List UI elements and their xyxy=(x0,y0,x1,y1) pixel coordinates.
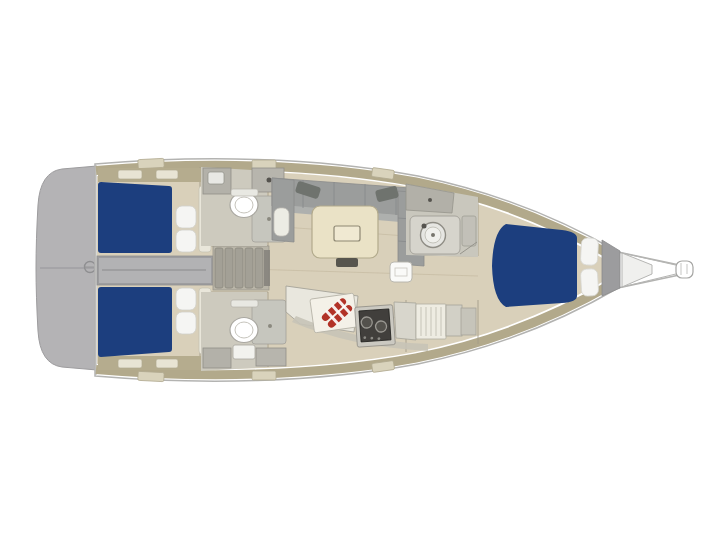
aft-cabin-top xyxy=(98,168,211,253)
v-berth-pillow xyxy=(580,238,598,266)
stair-tread xyxy=(215,248,223,288)
head-sink xyxy=(208,172,224,184)
stove-group xyxy=(355,305,396,348)
cabinet-knob xyxy=(428,198,432,202)
toilet-bottom xyxy=(230,318,258,343)
toilet-top-tank xyxy=(231,189,258,196)
salon-table xyxy=(312,206,378,267)
aft-cabin-top-cabinet xyxy=(98,168,208,182)
head-cabinet xyxy=(256,348,286,366)
galley-step xyxy=(461,308,476,335)
head-shelf xyxy=(462,216,476,246)
shower-drain xyxy=(267,217,271,221)
berth-pillow xyxy=(176,206,196,228)
stove-burner xyxy=(361,317,373,329)
v-berth-pillow xyxy=(580,269,598,297)
stair-tread xyxy=(245,248,253,288)
companionway-stairs xyxy=(213,246,270,290)
head-counter xyxy=(203,348,231,368)
deck-hatch xyxy=(138,371,164,381)
side-fixture xyxy=(390,262,412,282)
berth-pillow xyxy=(176,288,196,310)
table-recess xyxy=(334,226,360,241)
faucet-dot xyxy=(267,178,272,183)
aft-berth-bottom xyxy=(98,287,172,357)
aft-head-bottom xyxy=(201,292,286,371)
sofa-arm-pad xyxy=(274,208,289,236)
stair-tread xyxy=(235,248,243,288)
shower-drain xyxy=(268,324,272,328)
stair-tread xyxy=(255,248,263,288)
cabinet-hatch xyxy=(156,170,178,179)
aft-berth-top xyxy=(98,182,172,253)
deck-hatch xyxy=(138,158,164,168)
engine-compartment xyxy=(97,256,213,285)
side-fixture-body xyxy=(390,262,412,282)
berth-pillow xyxy=(176,312,196,334)
washbasin-drain xyxy=(431,233,435,237)
stove-burner xyxy=(375,321,387,333)
anchor-locker xyxy=(602,240,620,296)
v-berth xyxy=(492,224,577,307)
cabinet-hatch xyxy=(156,359,178,368)
stair-treads xyxy=(215,248,263,288)
anchor-roller xyxy=(676,261,693,278)
aft-cabin-bottom xyxy=(98,287,211,370)
stairs-shadow xyxy=(264,250,270,286)
toilet-bottom-tank xyxy=(231,300,258,307)
head-sink xyxy=(233,345,255,359)
deck-hatch xyxy=(252,371,276,380)
cabinet-hatch xyxy=(118,170,142,179)
galley-step xyxy=(446,305,462,336)
berth-pillow xyxy=(176,230,196,252)
floorplan-svg: Sailboat interior layout floor plan, top… xyxy=(0,0,720,540)
cabinet-hatch xyxy=(118,359,142,368)
boat-floorplan-image: Sailboat interior layout floor plan, top… xyxy=(0,0,720,540)
aft-cabin-bottom-cabinet xyxy=(98,356,208,370)
washbasin-faucet xyxy=(422,224,427,229)
galley-counter-right xyxy=(394,302,416,340)
stair-tread xyxy=(225,248,233,288)
swim-platform xyxy=(36,166,97,370)
table-leg xyxy=(336,258,358,267)
